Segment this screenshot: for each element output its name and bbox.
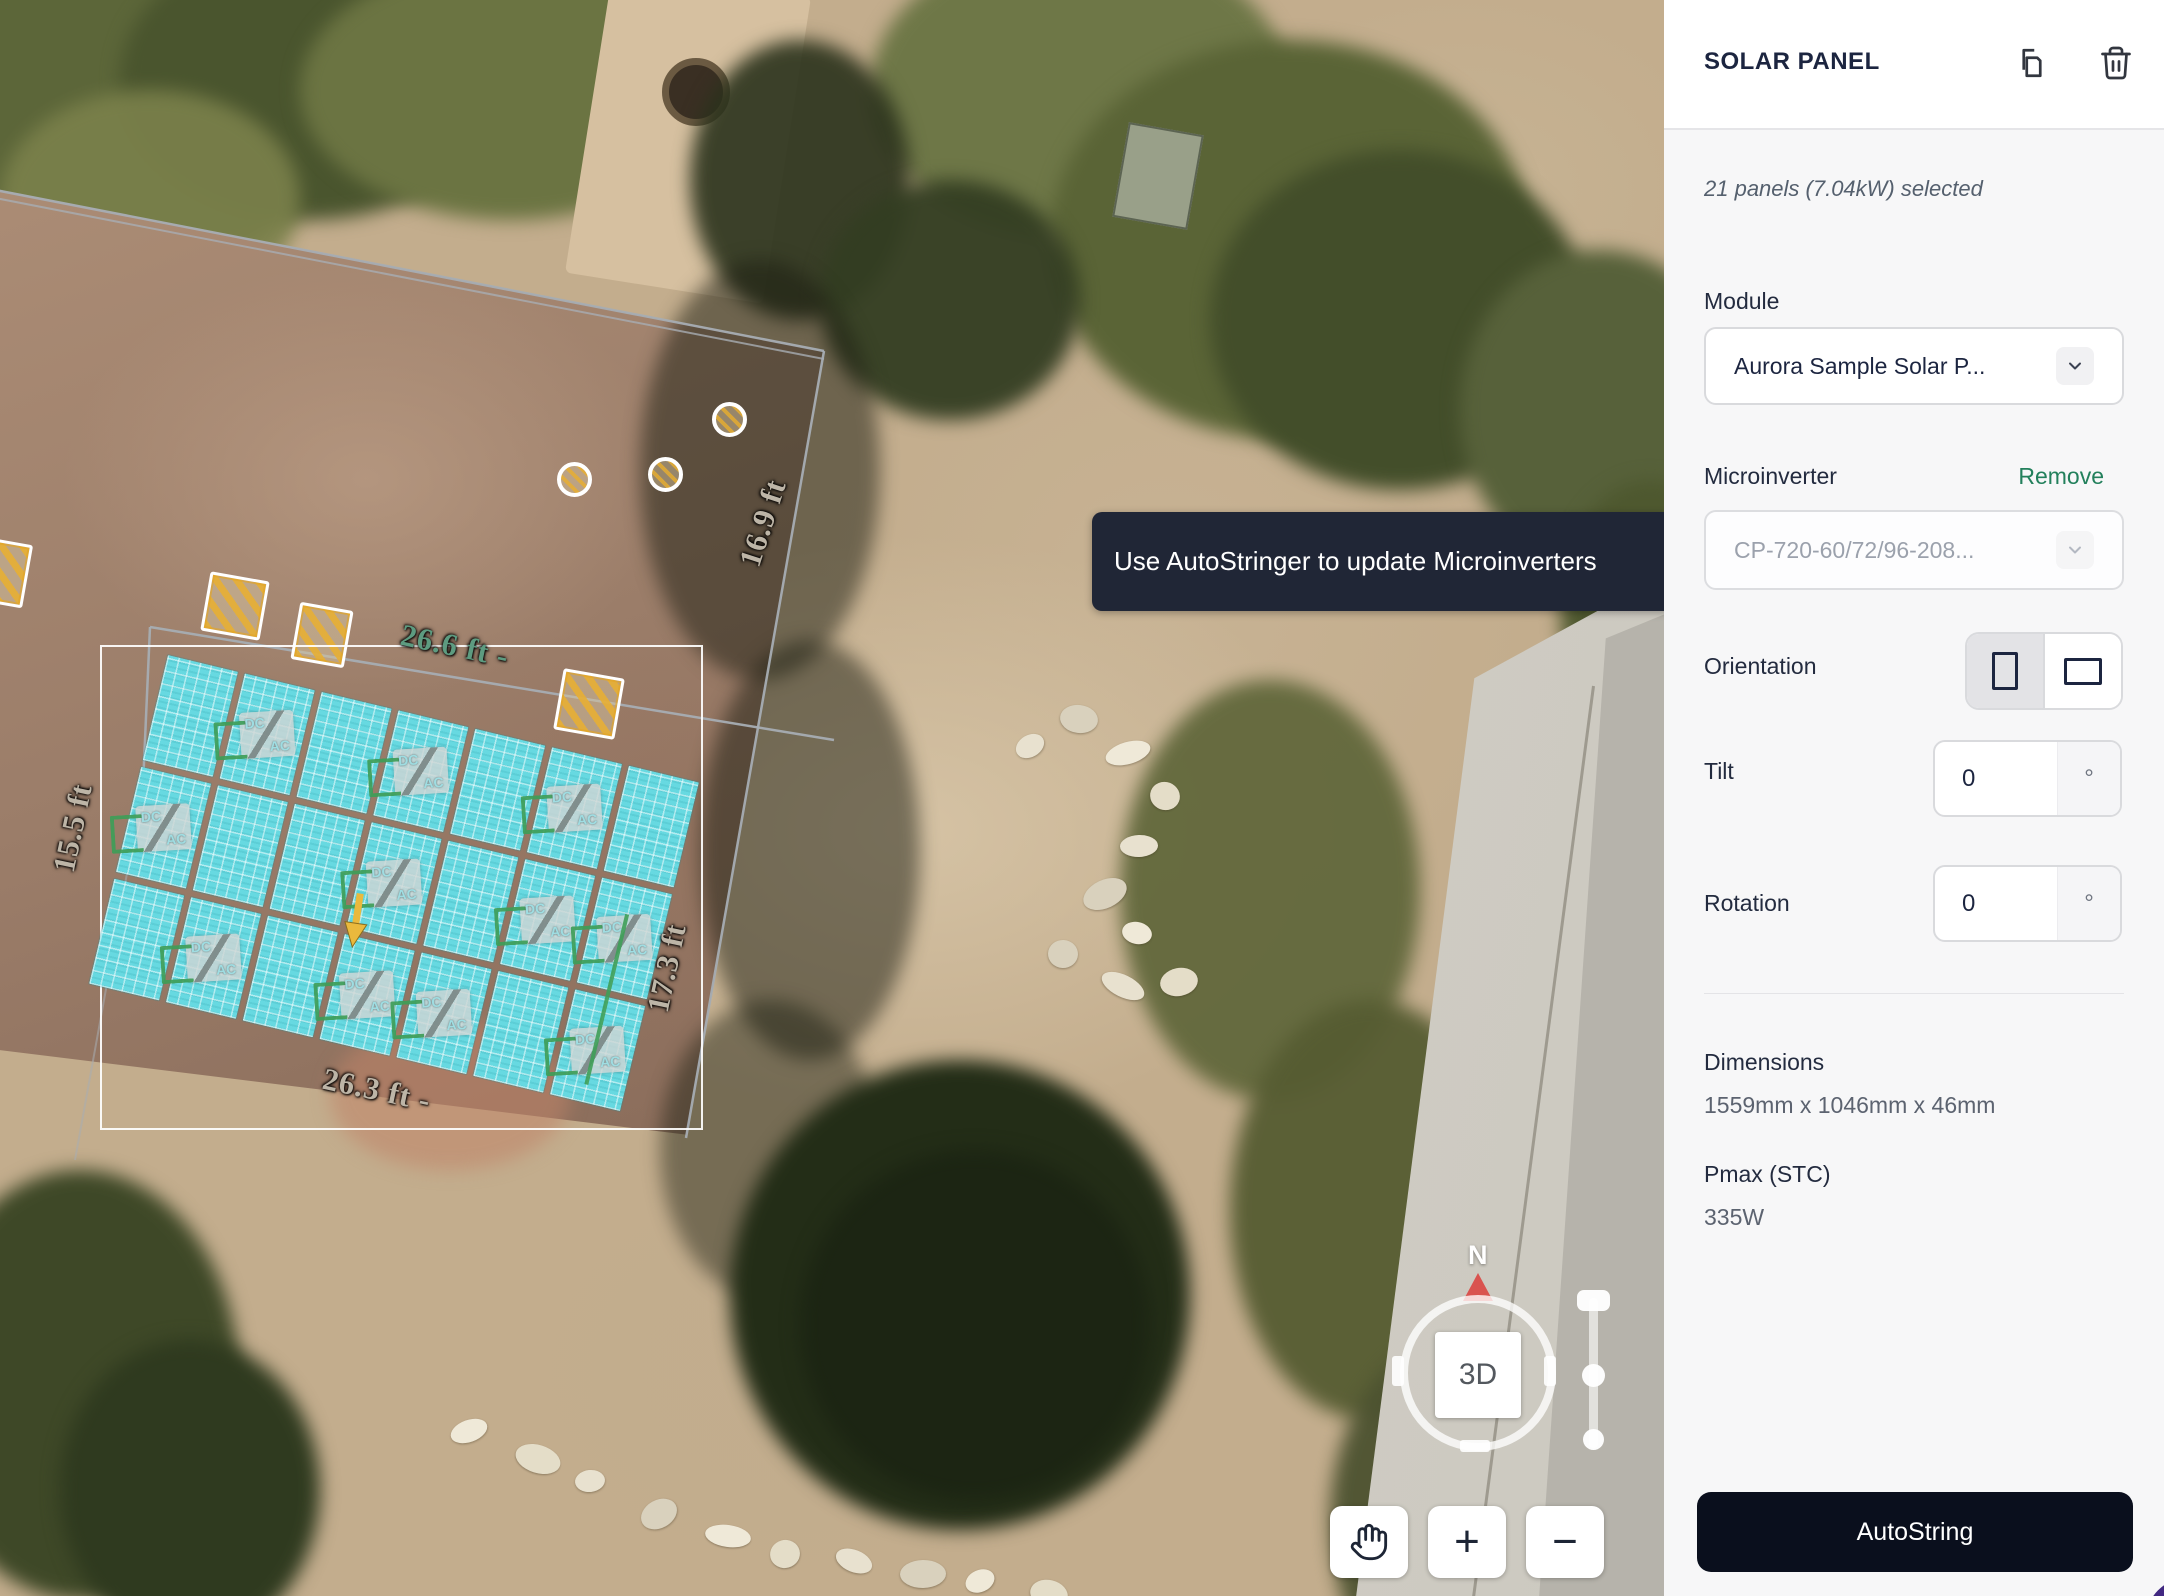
- landscape-icon: [2064, 658, 2102, 685]
- microinverter-icon: DCAC: [239, 710, 296, 759]
- pmax-label: Pmax (STC): [1704, 1161, 1831, 1188]
- rotation-input[interactable]: 0 °: [1933, 865, 2122, 942]
- chevron-down-icon: [2056, 347, 2094, 385]
- dc-label: DC: [398, 751, 419, 768]
- dc-label: DC: [524, 900, 545, 917]
- selection-summary: 21 panels (7.04kW) selected: [1704, 176, 1983, 202]
- ac-label: AC: [446, 1016, 467, 1033]
- orientation-landscape-option[interactable]: [2043, 634, 2121, 708]
- compass-tick-west: [1392, 1356, 1404, 1386]
- ac-label: AC: [600, 1053, 621, 1070]
- panel-title: SOLAR PANEL: [1704, 48, 1880, 76]
- duplicate-button[interactable]: [2012, 44, 2052, 84]
- ac-label: AC: [423, 774, 444, 791]
- compass-widget[interactable]: N 3D: [1392, 1240, 1572, 1470]
- dc-label: DC: [140, 808, 161, 825]
- view-tilt-slider[interactable]: [1576, 1290, 1616, 1460]
- microinverter-icon: DCAC: [546, 784, 603, 833]
- microinverter-icon: DCAC: [185, 933, 242, 982]
- ac-label: AC: [396, 886, 417, 903]
- dc-label: DC: [190, 938, 211, 955]
- tilt-input[interactable]: 0 °: [1933, 740, 2122, 817]
- degree-unit: °: [2057, 742, 2120, 815]
- ac-label: AC: [166, 830, 187, 847]
- dc-label: DC: [551, 788, 572, 805]
- map-canvas[interactable]: DCACDCACDCACDCACDCACDCACDCACDCACDCACDCAC…: [0, 0, 1664, 1596]
- dc-label: DC: [421, 993, 442, 1010]
- microinverter-icon: DCAC: [135, 803, 192, 852]
- orientation-toggle: [1965, 632, 2123, 710]
- slider-bottom-handle[interactable]: [1583, 1429, 1604, 1450]
- slider-top-handle[interactable]: [1577, 1290, 1610, 1311]
- microinverter-value: CP-720-60/72/96-208...: [1734, 537, 1974, 564]
- solar-panel-inspector-panel: SOLAR PANEL 21 pa: [1664, 0, 2164, 1596]
- dc-label: DC: [574, 1030, 595, 1047]
- dimensions-label: Dimensions: [1704, 1049, 1824, 1076]
- tooltip-text: Use AutoStringer to update Microinverter…: [1114, 546, 1597, 577]
- ac-label: AC: [576, 811, 597, 828]
- zoom-out-button[interactable]: −: [1526, 1506, 1604, 1578]
- compass-tick-east: [1544, 1356, 1556, 1386]
- mode-3d-button[interactable]: 3D: [1435, 1332, 1521, 1418]
- autostringer-tooltip: Use AutoStringer to update Microinverter…: [1092, 512, 1664, 611]
- dc-label: DC: [601, 919, 622, 936]
- trash-icon: [2098, 45, 2134, 81]
- compass-tick-south: [1460, 1440, 1490, 1452]
- divider: [1704, 993, 2124, 994]
- chevron-down-icon: [2056, 531, 2094, 569]
- pmax-value: 335W: [1704, 1204, 1764, 1231]
- roof-vent[interactable]: [557, 462, 592, 497]
- tilt-label: Tilt: [1704, 758, 1734, 785]
- module-label: Module: [1704, 288, 1779, 315]
- microinverter-icon: DCAC: [416, 989, 473, 1038]
- remove-microinverter-link[interactable]: Remove: [2018, 463, 2104, 490]
- module-value: Aurora Sample Solar P...: [1734, 353, 1985, 380]
- delete-button[interactable]: [2096, 44, 2136, 84]
- roof-obstruction[interactable]: [200, 571, 270, 641]
- ac-label: AC: [626, 941, 647, 958]
- microinverter-label: Microinverter: [1704, 463, 1837, 490]
- orientation-label: Orientation: [1704, 653, 1817, 680]
- roof-vent[interactable]: [712, 402, 747, 437]
- dc-label: DC: [344, 975, 365, 992]
- portrait-icon: [1992, 652, 2018, 690]
- ac-label: AC: [269, 737, 290, 754]
- dc-label: DC: [244, 714, 265, 731]
- app-window: DCACDCACDCACDCACDCACDCACDCACDCACDCACDCAC…: [0, 0, 2164, 1596]
- ac-label: AC: [550, 923, 571, 940]
- tilt-value[interactable]: 0: [1935, 742, 2057, 815]
- ac-label: AC: [216, 961, 237, 978]
- rotation-label: Rotation: [1704, 890, 1790, 917]
- degree-unit: °: [2057, 867, 2120, 940]
- microinverter-icon: DCAC: [392, 747, 449, 796]
- roof-vent[interactable]: [648, 457, 683, 492]
- hand-icon: [1349, 1522, 1389, 1562]
- orientation-portrait-option[interactable]: [1967, 634, 2043, 708]
- pan-tool-button[interactable]: [1330, 1506, 1408, 1578]
- microinverter-icon: DCAC: [366, 858, 423, 907]
- microinverter-select[interactable]: CP-720-60/72/96-208...: [1704, 510, 2124, 590]
- autostring-button[interactable]: AutoString: [1697, 1492, 2133, 1572]
- ac-label: AC: [369, 998, 390, 1015]
- slider-handle[interactable]: [1582, 1364, 1605, 1387]
- dimensions-value: 1559mm x 1046mm x 46mm: [1704, 1092, 1995, 1119]
- north-label: N: [1468, 1240, 1488, 1271]
- module-select[interactable]: Aurora Sample Solar P...: [1704, 327, 2124, 405]
- microinverter-icon: DCAC: [519, 895, 576, 944]
- rotation-value[interactable]: 0: [1935, 867, 2057, 940]
- copy-icon: [2014, 45, 2050, 81]
- zoom-in-button[interactable]: +: [1428, 1506, 1506, 1578]
- panel-header: SOLAR PANEL: [1664, 0, 2164, 130]
- microinverter-icon: DCAC: [339, 970, 396, 1019]
- dc-label: DC: [371, 863, 392, 880]
